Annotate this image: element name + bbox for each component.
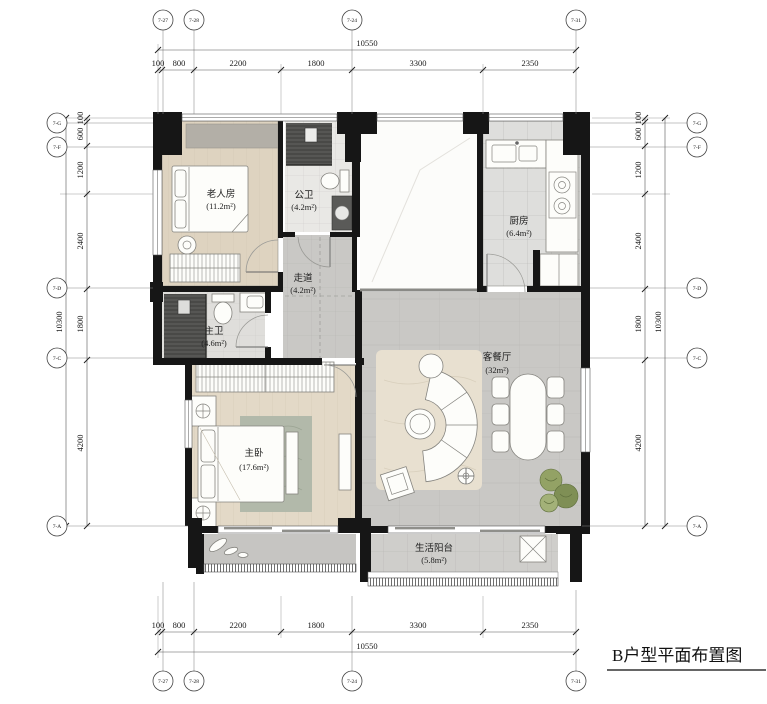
svg-text:7-C: 7-C	[693, 356, 702, 362]
side-table-icon	[178, 236, 196, 254]
shower-icon	[164, 294, 206, 358]
svg-text:7-24: 7-24	[347, 679, 357, 685]
room-label: 老人房	[207, 188, 236, 200]
wardrobe-icon	[170, 254, 240, 282]
room-label: 走道	[293, 272, 313, 284]
dim-seg: 1200	[75, 162, 85, 179]
dim-seg: 600	[633, 128, 643, 141]
sink-icon	[332, 196, 352, 230]
floor-plan-sheet: 老人房 (11.2m²) 公卫 (4.2m²) 厨房 (6.4m²) 走道 (4…	[0, 0, 767, 704]
svg-text:7-G: 7-G	[693, 121, 702, 127]
dim-total-bottom: 10550	[356, 641, 377, 651]
room-area: (4.2m²)	[291, 202, 317, 212]
svg-text:7-D: 7-D	[53, 286, 62, 292]
shower-icon	[286, 123, 332, 165]
grid-bubble: 7-27	[153, 10, 173, 30]
dim-seg: 2350	[522, 620, 539, 630]
grid-bubble: 7-F	[47, 137, 67, 157]
dim-seg: 1200	[633, 162, 643, 179]
svg-text:7-27: 7-27	[158, 18, 168, 24]
svg-text:7-31: 7-31	[571, 18, 581, 24]
svg-text:7-A: 7-A	[693, 524, 702, 530]
window-left	[153, 170, 162, 255]
floor-plan-drawing: 老人房 (11.2m²) 公卫 (4.2m²) 厨房 (6.4m²) 走道 (4…	[0, 0, 767, 704]
dimensions-right: 100 600 1200 2400 1800 4200 10300 7-G 7-…	[582, 112, 707, 536]
grid-bubble: 7-A	[47, 516, 67, 536]
dim-seg: 4200	[633, 435, 643, 452]
dim-seg: 2350	[522, 58, 539, 68]
dim-seg: 1800	[308, 620, 325, 630]
drawing-title: B户型平面布置图	[612, 646, 742, 665]
dim-seg: 800	[173, 58, 186, 68]
dim-total-top: 10550	[356, 38, 377, 48]
grid-bubble: 7-28	[184, 671, 204, 691]
room-area: (5.8m²)	[421, 555, 447, 565]
fridge-icon	[540, 254, 578, 286]
grid-bubble: 7-C	[687, 348, 707, 368]
dim-total-left: 10300	[54, 311, 64, 332]
window-balcony-left	[204, 564, 356, 572]
window-living-right	[581, 368, 590, 452]
dim-seg: 100	[152, 620, 165, 630]
grid-bubble: 7-24	[342, 10, 362, 30]
window-kitchen	[489, 114, 563, 121]
svg-text:7-27: 7-27	[158, 679, 168, 685]
window-bedroom-left	[185, 400, 192, 448]
room-label: 厨房	[509, 215, 528, 227]
grid-bubble: 7-27	[153, 671, 173, 691]
room-label: 客餐厅	[483, 351, 512, 363]
grid-bubble: 7-D	[47, 278, 67, 298]
title-block: B户型平面布置图	[607, 646, 766, 670]
room-area: (32m²)	[485, 365, 508, 375]
tv-console	[339, 434, 351, 490]
slider-living-balcony	[388, 526, 545, 533]
bed-bench	[286, 432, 298, 494]
grid-bubble: 7-G	[687, 113, 707, 133]
room-area: (17.6m²)	[239, 462, 269, 472]
dim-seg: 2200	[230, 620, 247, 630]
room-label: 公卫	[294, 190, 314, 201]
dim-seg: 100	[75, 112, 85, 125]
svg-text:7-G: 7-G	[53, 121, 62, 127]
dim-seg: 100	[633, 112, 643, 125]
dim-seg: 4200	[75, 435, 85, 452]
dim-total-right: 10300	[653, 311, 663, 332]
dim-seg: 600	[75, 128, 85, 141]
svg-text:7-F: 7-F	[693, 145, 701, 151]
kitchen-sink-icon	[486, 140, 546, 168]
grid-bubble: 7-28	[184, 10, 204, 30]
room-area: (11.2m²)	[206, 201, 236, 211]
dimensions-bottom: 100 800 2200 1800 3300 2350 10550 7-27 7…	[152, 582, 586, 691]
grid-bubble: 7-D	[687, 278, 707, 298]
svg-text:7-24: 7-24	[347, 18, 357, 24]
grid-bubble: 7-F	[687, 137, 707, 157]
dim-seg: 3300	[410, 58, 427, 68]
dining-table-icon	[492, 374, 564, 460]
dim-seg: 1800	[75, 316, 85, 333]
room-label: 主卫	[204, 325, 224, 337]
dim-seg: 100	[152, 58, 165, 68]
room-area: (4.2m²)	[290, 285, 316, 295]
dimensions-top: 10550 100 800 2200 1800 3300 2350 7-27 7…	[152, 10, 586, 114]
dim-seg: 3300	[410, 620, 427, 630]
room-area: (6.4m²)	[506, 228, 532, 238]
nightstand-icon	[190, 396, 216, 426]
headboard-cabinet	[186, 124, 278, 148]
svg-text:7-D: 7-D	[693, 286, 702, 292]
svg-text:7-31: 7-31	[571, 679, 581, 685]
svg-text:7-F: 7-F	[53, 145, 61, 151]
window-top	[377, 114, 463, 121]
window-top	[182, 114, 337, 121]
grid-bubble: 7-C	[47, 348, 67, 368]
room-label: 生活阳台	[415, 542, 453, 554]
slider-bedroom-balcony	[218, 526, 338, 533]
wardrobe-icon	[196, 362, 334, 392]
svg-text:7-28: 7-28	[189, 679, 199, 685]
coffee-table-icon	[405, 409, 435, 439]
svg-text:7-A: 7-A	[53, 524, 62, 530]
dim-seg: 2400	[633, 233, 643, 250]
room-label: 主卧	[244, 447, 264, 459]
pouf-icon	[419, 354, 443, 378]
compass-icon	[458, 468, 474, 484]
grid-bubble: 7-31	[566, 10, 586, 30]
room-area: (4.6m²)	[201, 338, 227, 348]
dim-seg: 2200	[230, 58, 247, 68]
grid-bubble: 7-24	[342, 671, 362, 691]
grid-bubble: 7-G	[47, 113, 67, 133]
svg-text:7-28: 7-28	[189, 18, 199, 24]
dim-seg: 1800	[308, 58, 325, 68]
dim-seg: 800	[173, 620, 186, 630]
grid-bubble: 7-31	[566, 671, 586, 691]
washer-icon	[520, 536, 546, 562]
grid-bubble: 7-A	[687, 516, 707, 536]
toilet-icon	[212, 294, 234, 324]
stove-icon	[546, 140, 578, 252]
dim-seg: 2400	[75, 233, 85, 250]
dim-seg: 1800	[633, 316, 643, 333]
svg-text:7-C: 7-C	[53, 356, 62, 362]
window-balcony-right	[368, 572, 558, 586]
